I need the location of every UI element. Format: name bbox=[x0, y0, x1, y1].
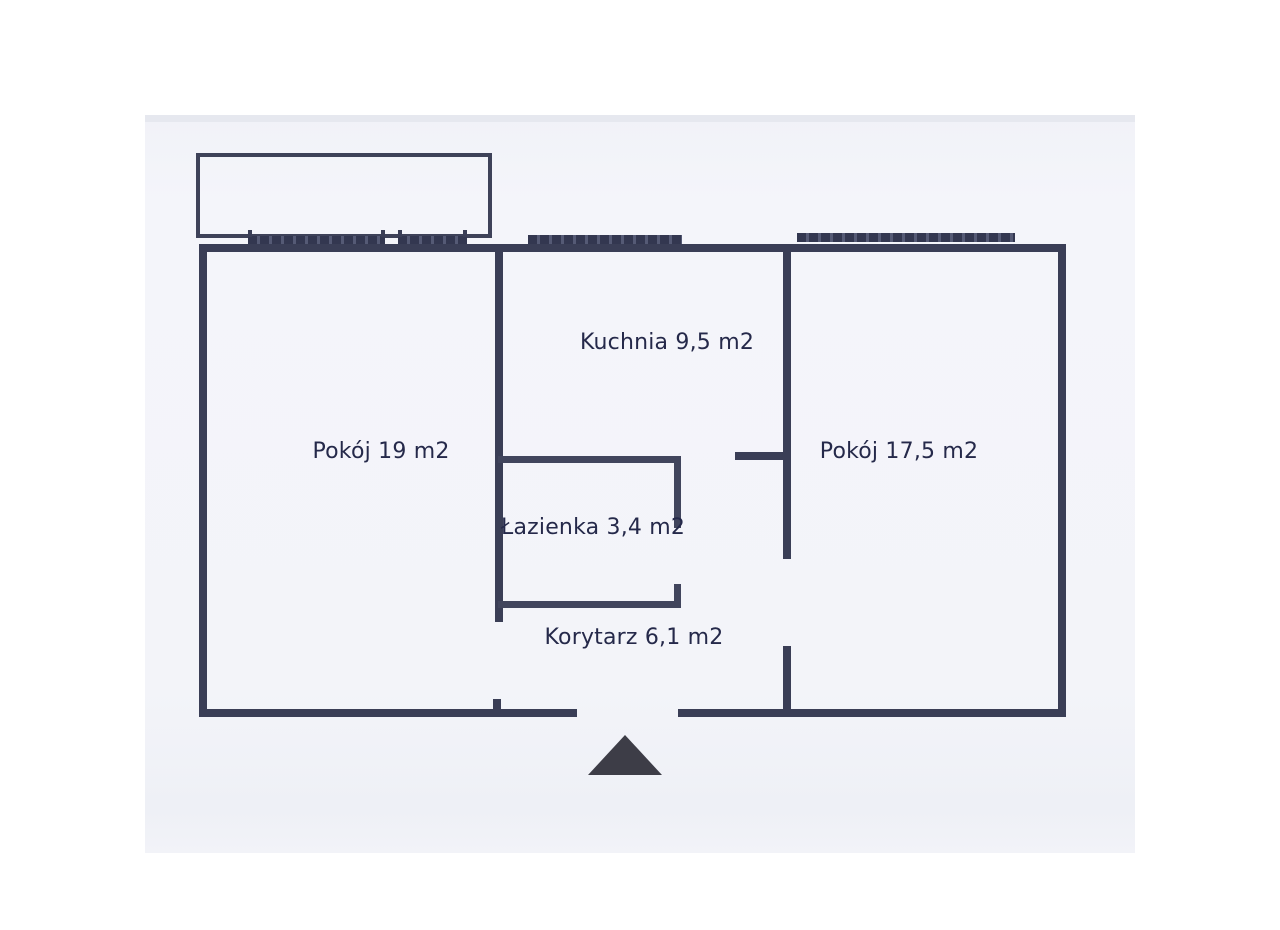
window-tick bbox=[248, 230, 252, 237]
room-label-kuchnia: Kuchnia 9,5 m2 bbox=[580, 331, 754, 354]
wall-outer-right bbox=[1058, 244, 1066, 717]
room-label-lazienka: Łazienka 3,4 m2 bbox=[501, 516, 685, 539]
wall-divider-right-room-lower bbox=[783, 646, 791, 717]
room-label-pokoj-17-5: Pokój 17,5 m2 bbox=[820, 440, 978, 463]
window-kitchen bbox=[528, 235, 682, 244]
wall-divider-left-room-stub bbox=[493, 699, 501, 713]
window-tick bbox=[398, 230, 402, 237]
wall-bathroom-bottom bbox=[498, 601, 681, 608]
window-room-right bbox=[797, 233, 1015, 242]
wall-bathroom-top bbox=[498, 456, 681, 463]
scan-edge-shadow bbox=[145, 115, 1135, 122]
entrance-arrow-icon bbox=[588, 735, 662, 775]
room-label-korytarz: Korytarz 6,1 m2 bbox=[545, 626, 724, 649]
wall-outer-bottom-right-of-entrance bbox=[678, 709, 1066, 717]
wall-outer-top bbox=[199, 244, 1066, 252]
floor-plan-page: Pokój 19 m2 Kuchnia 9,5 m2 Pokój 17,5 m2… bbox=[0, 0, 1280, 930]
wall-kitchen-bottom-stub bbox=[735, 452, 791, 460]
room-label-pokoj-19: Pokój 19 m2 bbox=[312, 440, 449, 463]
wall-divider-right-room-upper bbox=[783, 244, 791, 559]
wall-divider-left-room bbox=[495, 244, 503, 622]
wall-outer-bottom-left-of-entrance bbox=[199, 709, 577, 717]
balcony-outline bbox=[196, 153, 492, 238]
window-tick bbox=[381, 230, 385, 237]
wall-outer-left bbox=[199, 244, 207, 717]
window-tick bbox=[463, 230, 467, 237]
